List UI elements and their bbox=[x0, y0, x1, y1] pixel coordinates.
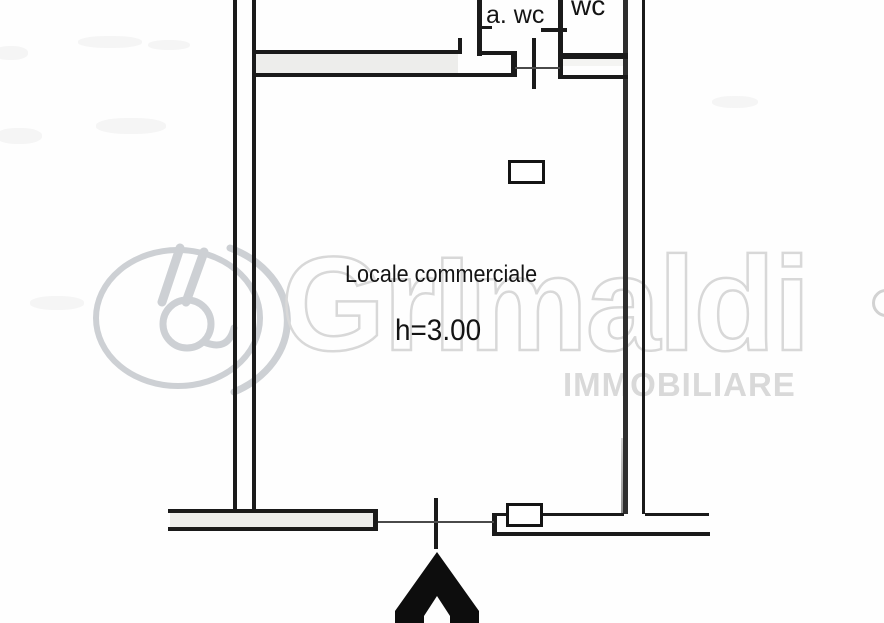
room-label-wc: wc bbox=[571, 0, 605, 22]
wall-right-outer bbox=[642, 0, 645, 514]
door-leaf-mark-awc bbox=[532, 38, 536, 89]
wall-wc-bottom bbox=[558, 53, 628, 59]
door-mark-wc bbox=[541, 28, 567, 32]
wall-awc-bottom bbox=[477, 51, 517, 55]
wall-bottom-right-upper-b bbox=[645, 513, 709, 516]
fixture-box-lower bbox=[506, 503, 543, 527]
wall-bottom-left-lower bbox=[168, 527, 378, 531]
room-label-awc: a. wc bbox=[486, 1, 544, 30]
wall-left-outer bbox=[233, 0, 237, 511]
room-height-note: h=3.00 bbox=[395, 314, 481, 348]
room-label-main: Locale commerciale bbox=[345, 261, 537, 289]
wall-topright-lower-line bbox=[558, 75, 628, 79]
door-leaf-mark-entrance bbox=[434, 498, 438, 549]
floor-plan: GrImaldi IMMOBILIARE bbox=[0, 0, 884, 623]
wall-top-upper-line bbox=[255, 50, 460, 54]
door-threshold-entrance bbox=[378, 521, 494, 523]
entrance-arrow-icon bbox=[390, 545, 490, 623]
walls bbox=[0, 0, 884, 623]
wall-bottom-right-lower bbox=[492, 532, 710, 536]
wall-bottom-left-upper bbox=[168, 509, 378, 513]
wall-top-lower-line bbox=[255, 73, 517, 77]
fixture-box-upper bbox=[508, 160, 545, 184]
door-threshold-awc bbox=[515, 67, 560, 69]
